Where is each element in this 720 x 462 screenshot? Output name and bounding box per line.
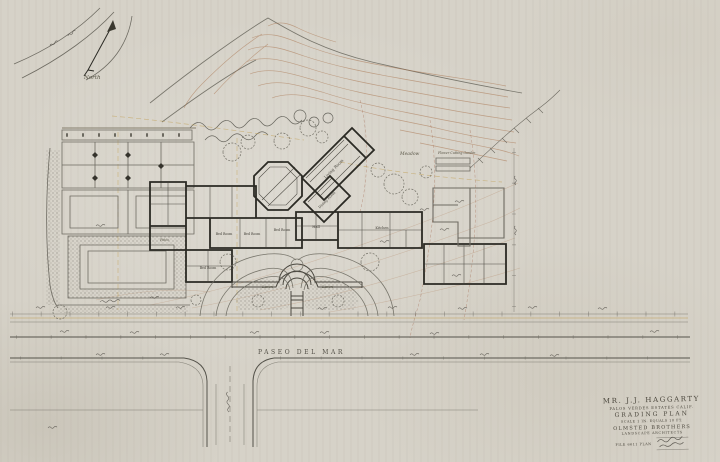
hillside-contours: [150, 18, 560, 168]
title-block: MR. J.J. HAGGARTY PALOS VERDES ESTATES C…: [584, 394, 719, 452]
living-room-label: Living Room: [323, 158, 345, 180]
cutting-garden-label: Flower Cutting Garden: [437, 151, 475, 155]
drainage-dashed-lines: [360, 100, 476, 338]
bed-room-label: Bed Room: [274, 228, 291, 232]
north-arrow-shaft: [84, 24, 113, 76]
squiggle: [455, 200, 464, 202]
north-arrow-group: [14, 8, 132, 80]
road-name-label: PASEO DEL MAR: [258, 349, 345, 356]
squiggle: [430, 332, 439, 334]
file-reference: FILE 6611 PLAN: [615, 442, 651, 447]
squiggle: [96, 353, 105, 355]
lawn-label: Lawn: [321, 284, 333, 289]
squiggle: [100, 300, 120, 303]
dining-room-label: Dining Room: [318, 190, 337, 209]
bed-room-label: Bed Room: [216, 232, 233, 236]
drive-loops: [200, 254, 394, 316]
squiggle: [440, 228, 449, 230]
squiggle: [67, 30, 76, 36]
vegetation-scribble: [190, 110, 333, 142]
ridge-lines: [150, 18, 522, 122]
service-court-buildings: [433, 188, 504, 246]
squiggle: [60, 330, 69, 332]
drawing-sheet: North PASEO DEL MAR Meadow Flower Cuttin…: [0, 0, 720, 462]
planting-stipple: [46, 150, 358, 313]
squiggle: [36, 306, 45, 308]
squiggle: [320, 331, 329, 333]
squiggle: [48, 426, 57, 428]
squiggle: [160, 353, 169, 355]
squiggle: [480, 353, 489, 355]
squiggle: [130, 331, 139, 333]
squiggle: [227, 392, 230, 412]
squiggle: [410, 353, 419, 355]
kitchen-label: Kitchen: [375, 226, 389, 230]
squiggle: [598, 307, 607, 309]
bed-room-label: Bed Room: [244, 232, 261, 236]
squiggle: [420, 208, 429, 210]
north-arrow-head: [107, 20, 116, 32]
hall-label: Hall: [312, 225, 320, 229]
signature-stamp: [655, 436, 689, 451]
squiggle: [96, 224, 105, 226]
squiggle: [514, 226, 516, 235]
patio-label: Patio: [159, 238, 169, 242]
squiggle: [528, 306, 537, 308]
squiggle: [650, 330, 659, 332]
lawn-label: Lawn: [261, 284, 273, 289]
meadow-label: Meadow: [399, 151, 420, 157]
squiggle: [550, 354, 559, 356]
bed-room-label: Bed Room: [200, 266, 217, 270]
site-plan-drawing: North PASEO DEL MAR Meadow Flower Cuttin…: [0, 0, 720, 462]
north-label: North: [83, 75, 101, 81]
squiggle: [250, 331, 259, 333]
squiggle: [452, 274, 461, 276]
road-curves: [14, 8, 132, 80]
squiggle: [380, 240, 389, 242]
contour-lines: [184, 23, 519, 161]
